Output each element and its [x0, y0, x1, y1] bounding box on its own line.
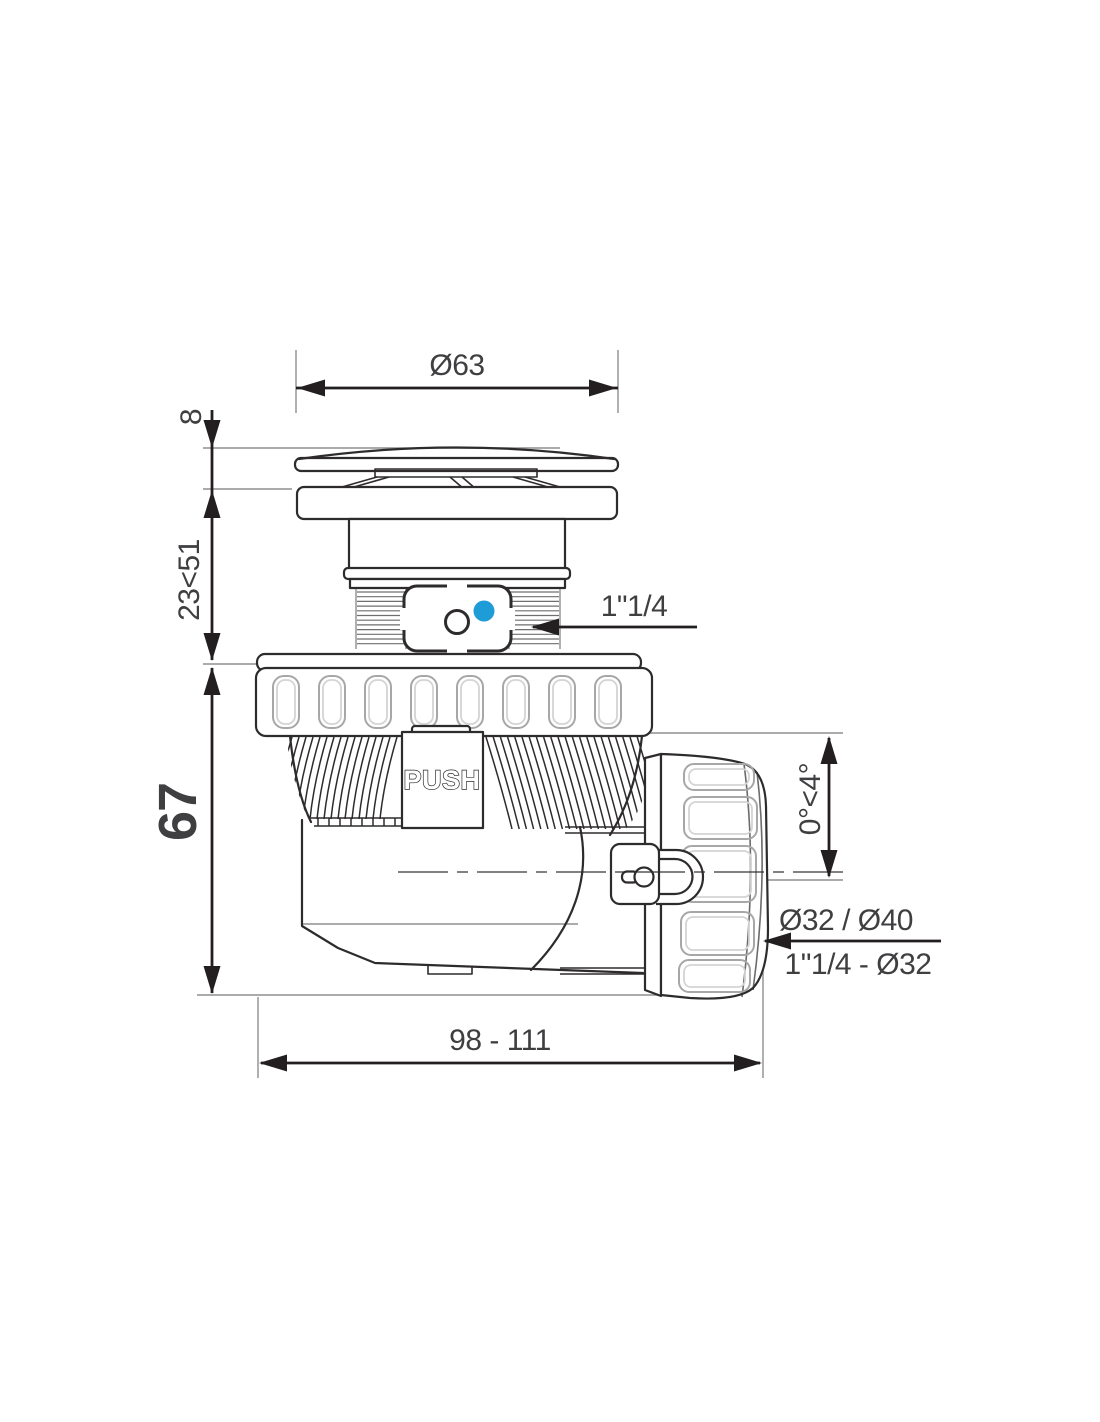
rib-line — [529, 737, 555, 829]
rib-line — [522, 737, 548, 829]
rib-line — [493, 737, 519, 829]
dim-overall-length: 98 - 111 — [259, 1024, 762, 1072]
dim-outlet-size: Ø32 / Ø40 1"1/4 - Ø32 — [763, 904, 941, 981]
dim-outlet-angle: 0°<4° — [794, 736, 838, 878]
dim-body-height: 67 — [148, 667, 221, 994]
white-indicator-ring — [446, 611, 469, 634]
rib-line — [380, 737, 397, 819]
swivel-loop-inner — [656, 859, 693, 894]
push-button-tab: PUSH — [402, 726, 483, 828]
neck-lip-upper — [344, 568, 570, 579]
escutcheon-flange — [297, 487, 617, 519]
rib-line — [515, 737, 541, 829]
dim-label-inlet-thread: 1"1/4 — [601, 590, 668, 623]
rib-line — [616, 737, 642, 829]
clip-plate — [400, 582, 515, 655]
dim-label-cap-diameter: Ø63 — [429, 349, 484, 382]
locking-nut — [256, 654, 652, 736]
drain-fitting: PUSH — [256, 448, 845, 999]
push-cap — [295, 448, 618, 490]
push-label: PUSH — [403, 765, 480, 795]
dim-label-outlet-thread: 1"1/4 - Ø32 — [785, 948, 932, 981]
dim-cap-height: 8 — [175, 409, 221, 660]
rib-line — [275, 737, 292, 819]
rib-line — [536, 737, 562, 829]
rib-line — [572, 737, 598, 829]
dim-label-overall-length: 98 - 111 — [449, 1024, 551, 1057]
dim-label-outlet-diameters: Ø32 / Ø40 — [779, 904, 913, 937]
rib-line — [544, 737, 570, 829]
dim-label-outlet-angle: 0°<4° — [794, 763, 827, 835]
rib-line — [587, 737, 613, 829]
drain-trap-drawing: PUSH Ø63 8 23<51 67 — [0, 0, 1100, 1422]
dim-label-body-height: 67 — [148, 783, 208, 841]
rib-ticks — [318, 818, 395, 826]
outlet-nut-assembly — [611, 754, 768, 999]
rib-line — [601, 737, 627, 829]
rib-line — [551, 737, 577, 829]
rib-line — [500, 737, 526, 829]
rib-line — [486, 737, 512, 829]
trap-body — [302, 820, 646, 974]
rib-line — [580, 737, 606, 829]
dim-label-neck-height: 23<51 — [173, 539, 206, 621]
bowl-right-arc — [531, 827, 583, 970]
neck-cylinder — [349, 519, 565, 570]
dim-label-cap-height: 8 — [175, 409, 208, 425]
rib-line — [508, 737, 534, 829]
rib-line — [565, 737, 591, 829]
blue-indicator-dot — [474, 601, 495, 622]
rib-line — [594, 737, 620, 829]
rib-line — [558, 737, 584, 829]
technical-drawing-canvas: PUSH Ø63 8 23<51 67 — [0, 0, 1100, 1422]
dim-cap-diameter: Ø63 — [296, 349, 618, 397]
